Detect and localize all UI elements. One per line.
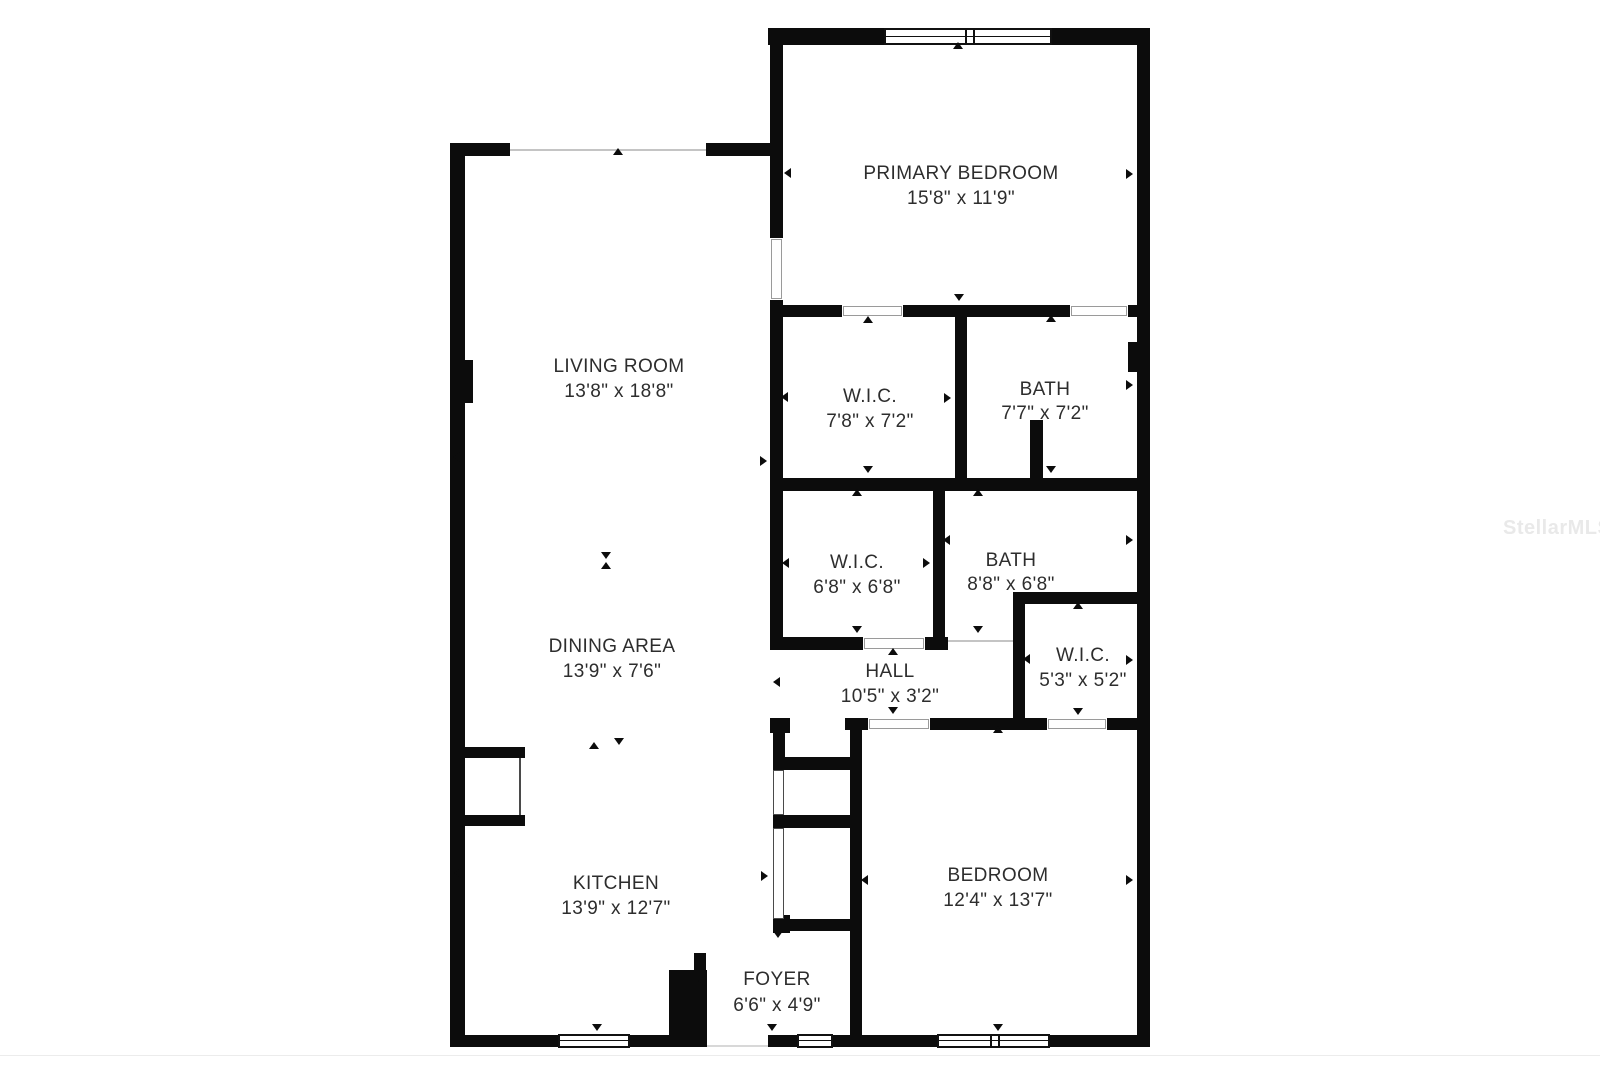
dimension-marker — [863, 466, 873, 473]
wall — [770, 478, 1150, 491]
dimension-marker — [1023, 654, 1030, 664]
door-opening — [1071, 306, 1127, 316]
dimension-marker — [1073, 602, 1083, 609]
window-mullion — [998, 1036, 1000, 1046]
room-name-foyer: FOYER — [743, 969, 810, 991]
room-dims-primary-bedroom: 15'8" x 11'9" — [907, 188, 1015, 210]
dimension-marker — [852, 626, 862, 633]
dimension-marker — [773, 677, 780, 687]
room-dims-bath-2: 8'8" x 6'8" — [967, 574, 1054, 596]
wall — [1128, 342, 1147, 372]
dimension-marker — [453, 452, 460, 462]
dimension-marker — [1073, 708, 1083, 715]
room-name-wic-3: W.I.C. — [1056, 645, 1110, 667]
dimension-marker — [1046, 315, 1056, 322]
dimension-marker — [888, 648, 898, 655]
room-dims-hall: 10'5" x 3'2" — [841, 686, 939, 708]
dimension-marker — [601, 562, 611, 569]
wall — [1050, 1035, 1150, 1047]
dimension-marker — [698, 976, 705, 986]
room-name-wic-2: W.I.C. — [830, 552, 884, 574]
dimension-marker — [852, 489, 862, 496]
wall — [833, 1035, 937, 1047]
room-name-bedroom: BEDROOM — [948, 865, 1049, 887]
window — [937, 1034, 1050, 1048]
room-dims-dining-area: 13'9" x 7'6" — [563, 661, 661, 683]
dimension-marker — [1126, 875, 1133, 885]
room-name-primary-bedroom: PRIMARY BEDROOM — [863, 163, 1058, 185]
window-pane-line — [886, 36, 1050, 37]
room-dims-foyer: 6'6" x 4'9" — [733, 995, 820, 1017]
room-dims-wic-primary: 7'8" x 7'2" — [826, 411, 913, 433]
wall — [930, 718, 1047, 730]
dimension-marker — [888, 707, 898, 714]
opening-line — [707, 1045, 768, 1047]
window-mullion — [990, 1036, 992, 1046]
dimension-marker — [601, 552, 611, 559]
dimension-marker — [973, 489, 983, 496]
dimension-marker — [782, 558, 789, 568]
dimension-marker — [1126, 380, 1133, 390]
wall — [450, 143, 465, 1047]
wall — [933, 491, 945, 650]
dimension-marker — [943, 535, 950, 545]
dimension-marker — [613, 148, 623, 155]
floor-plan: StellarMLS PRIMARY BEDROOM15'8" x 11'9"L… — [0, 0, 1600, 1066]
dimension-marker — [944, 393, 951, 403]
dimension-marker — [1126, 535, 1133, 545]
room-dims-kitchen: 13'9" x 12'7" — [561, 898, 670, 920]
room-name-bath-primary: BATH — [1020, 379, 1071, 401]
dimension-marker — [923, 558, 930, 568]
dimension-marker — [953, 42, 963, 49]
dimension-marker — [589, 742, 599, 749]
door-opening — [869, 719, 929, 729]
window — [884, 28, 1052, 45]
wall — [1137, 28, 1150, 1047]
dimension-marker — [773, 931, 783, 938]
dimension-marker — [454, 868, 461, 878]
dimension-marker — [767, 1024, 777, 1031]
opening-line — [0, 1055, 1600, 1056]
door-opening — [843, 306, 902, 316]
wall — [770, 28, 783, 238]
room-name-hall: HALL — [865, 661, 914, 683]
room-dims-bath-primary: 7'7" x 7'2" — [1001, 403, 1088, 425]
dimension-marker — [863, 316, 873, 323]
wall — [1128, 305, 1150, 317]
closet-door — [773, 828, 784, 919]
wall — [925, 637, 948, 650]
wall — [1107, 718, 1150, 730]
wall — [1052, 28, 1150, 45]
dimension-marker — [861, 875, 868, 885]
room-name-living-room: LIVING ROOM — [553, 356, 684, 378]
room-dims-living-room: 13'8" x 18'8" — [564, 381, 673, 403]
wall — [768, 28, 884, 45]
room-dims-wic-2: 6'8" x 6'8" — [813, 577, 900, 599]
wall — [1030, 420, 1043, 478]
window — [797, 1034, 833, 1048]
room-name-bath-2: BATH — [986, 550, 1037, 572]
dimension-marker — [1126, 655, 1133, 665]
wall — [463, 360, 473, 403]
wall — [773, 815, 862, 828]
room-name-dining-area: DINING AREA — [549, 636, 676, 658]
dimension-marker — [760, 456, 767, 466]
window-pane-line — [939, 1040, 1048, 1041]
opening-line — [510, 149, 706, 151]
wall — [450, 143, 510, 156]
dimension-marker — [954, 294, 964, 301]
dimension-marker — [993, 726, 1003, 733]
watermark: StellarMLS — [1503, 517, 1600, 540]
dimension-marker — [993, 1024, 1003, 1031]
wall — [452, 815, 525, 826]
window-pane-line — [560, 1040, 628, 1041]
wall — [694, 953, 706, 970]
opening-line — [948, 640, 1013, 642]
room-dims-bedroom: 12'4" x 13'7" — [943, 890, 1052, 912]
dimension-marker — [973, 626, 983, 633]
dimension-marker — [614, 738, 624, 745]
dimension-marker — [1126, 169, 1133, 179]
window-mullion — [973, 30, 975, 43]
wall — [770, 300, 783, 648]
wall — [773, 919, 853, 931]
wall — [955, 317, 967, 478]
dimension-marker — [781, 392, 788, 402]
wall — [783, 305, 842, 317]
closet-door — [773, 770, 784, 815]
wall — [770, 637, 863, 650]
wall — [450, 1035, 558, 1047]
room-dims-wic-3: 5'3" x 5'2" — [1039, 670, 1126, 692]
dimension-marker — [1046, 466, 1056, 473]
wall — [452, 747, 525, 758]
wall — [768, 1035, 797, 1047]
dimension-marker — [592, 1024, 602, 1031]
door-opening — [1048, 719, 1106, 729]
wall — [903, 305, 1070, 317]
window-mullion — [965, 30, 967, 43]
door-opening — [771, 239, 782, 299]
opening-line — [519, 758, 521, 815]
room-name-kitchen: KITCHEN — [573, 873, 659, 895]
window — [558, 1034, 630, 1048]
room-name-wic-primary: W.I.C. — [843, 386, 897, 408]
wall — [773, 757, 862, 770]
window-pane-line — [799, 1040, 831, 1041]
dimension-marker — [761, 871, 768, 881]
dimension-marker — [784, 168, 791, 178]
